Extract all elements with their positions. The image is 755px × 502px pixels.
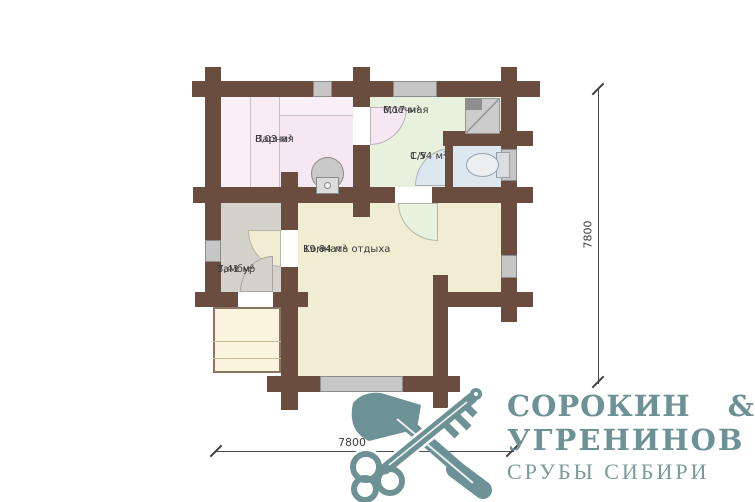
wall-notch-horizontal xyxy=(433,292,533,307)
dimension-line-right xyxy=(598,88,599,384)
window xyxy=(313,81,332,97)
room-living-floor-lower xyxy=(298,292,433,376)
window xyxy=(393,81,437,97)
dimension-label-right: 7800 xyxy=(582,213,595,257)
crossed-axe-and-key-icon xyxy=(333,383,513,502)
window xyxy=(501,255,517,278)
brand-name-line1: СОРОКИН & xyxy=(507,389,755,423)
room-area: 1,54 м² xyxy=(410,151,447,163)
room-area: 8,03 м² xyxy=(255,134,292,146)
log-end-stub xyxy=(353,203,370,217)
room-area: 3,41 м² xyxy=(217,264,254,276)
log-end-stub xyxy=(501,307,517,322)
room-area: 6,17 м² xyxy=(383,105,420,117)
porch-step-line xyxy=(213,358,281,359)
room-area: 19,94 м² xyxy=(303,244,346,256)
sauna-bench-shelf xyxy=(280,97,353,116)
toilet-icon xyxy=(466,153,499,177)
wall-middle-right xyxy=(432,187,533,203)
wall-tambur-living-upper xyxy=(281,172,298,230)
floor-plan-canvas: Парная 8,03 м² Моечная 6,17 м² С/У 1,54 … xyxy=(0,0,755,502)
wall-parnaya-moechnaya-upper xyxy=(353,67,370,107)
shower-diagonal-line xyxy=(465,98,500,134)
stove-knob-icon xyxy=(324,182,331,189)
window xyxy=(205,240,221,262)
porch-step-line xyxy=(213,341,281,342)
brand-name-line2: УГРЕНИНОВ xyxy=(507,423,744,457)
brand-tagline: СРУБЫ СИБИРИ xyxy=(507,459,709,485)
porch-steps xyxy=(213,307,281,373)
sauna-bench-tier1 xyxy=(221,97,251,187)
wall-tambur-bottom-right xyxy=(273,292,308,307)
wall-tambur-bottom-left xyxy=(195,292,238,307)
